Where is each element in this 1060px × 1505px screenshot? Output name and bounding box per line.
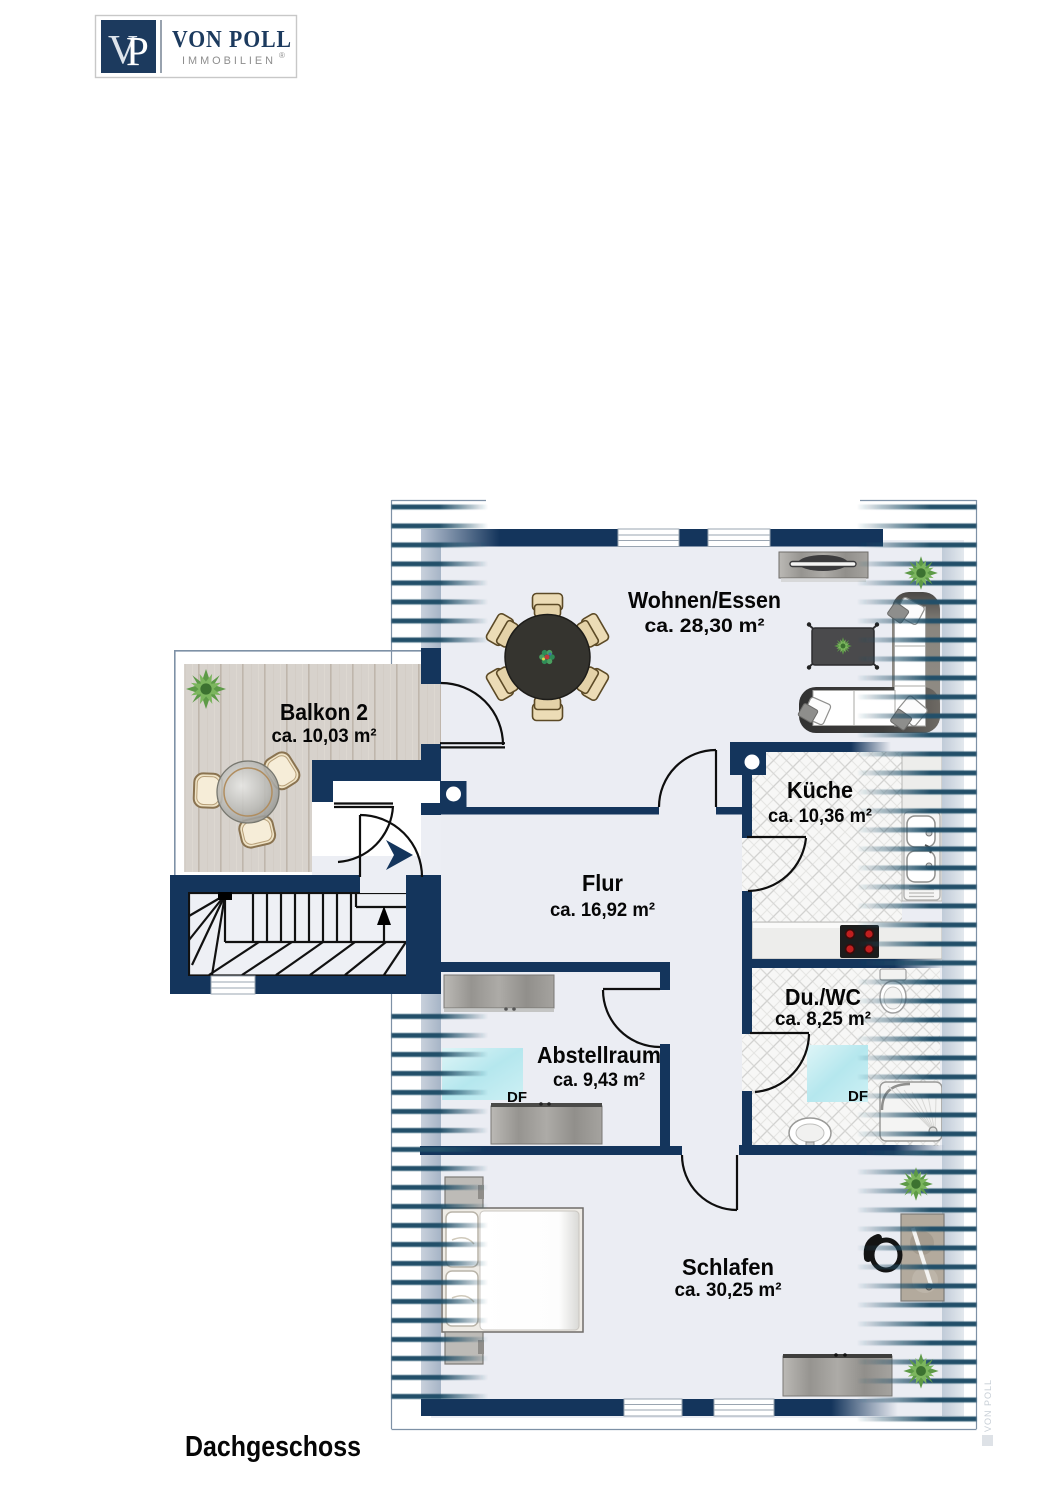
- svg-text:ca. 10,36 m²: ca. 10,36 m²: [768, 805, 872, 827]
- svg-text:ca. 28,30 m²: ca. 28,30 m²: [645, 615, 766, 637]
- svg-text:ca. 10,03 m²: ca. 10,03 m²: [272, 725, 377, 747]
- svg-text:Du./WC: Du./WC: [785, 984, 861, 1010]
- svg-text:Küche: Küche: [787, 777, 853, 803]
- svg-text:VON POLL: VON POLL: [983, 1379, 993, 1432]
- svg-text:ca. 16,92 m²: ca. 16,92 m²: [550, 899, 655, 921]
- svg-text:ca. 30,25 m²: ca. 30,25 m²: [675, 1279, 782, 1301]
- svg-text:Wohnen/Essen: Wohnen/Essen: [628, 587, 781, 613]
- svg-text:VON POLL: VON POLL: [172, 27, 292, 53]
- svg-text:IMMOBILIEN: IMMOBILIEN: [182, 55, 276, 67]
- svg-text:ca. 8,25 m²: ca. 8,25 m²: [775, 1008, 871, 1030]
- svg-text:ca. 9,43 m²: ca. 9,43 m²: [553, 1069, 645, 1091]
- svg-text:Abstellraum: Abstellraum: [537, 1042, 661, 1068]
- svg-text:Dachgeschoss: Dachgeschoss: [185, 1431, 361, 1463]
- svg-text:Flur: Flur: [582, 870, 623, 896]
- svg-text:Schlafen: Schlafen: [682, 1254, 774, 1280]
- svg-text:®: ®: [279, 51, 285, 60]
- svg-text:P: P: [126, 28, 149, 74]
- svg-text:Balkon 2: Balkon 2: [280, 699, 368, 725]
